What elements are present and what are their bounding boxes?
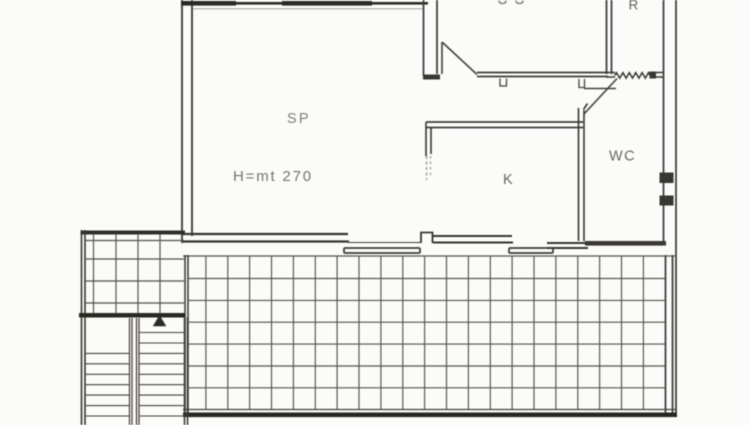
- svg-text:SP: SP: [287, 111, 311, 127]
- svg-text:K: K: [503, 172, 513, 188]
- svg-text:WC: WC: [609, 149, 636, 165]
- svg-text:R: R: [629, 0, 639, 13]
- svg-text:H=mt 270: H=mt 270: [233, 168, 313, 185]
